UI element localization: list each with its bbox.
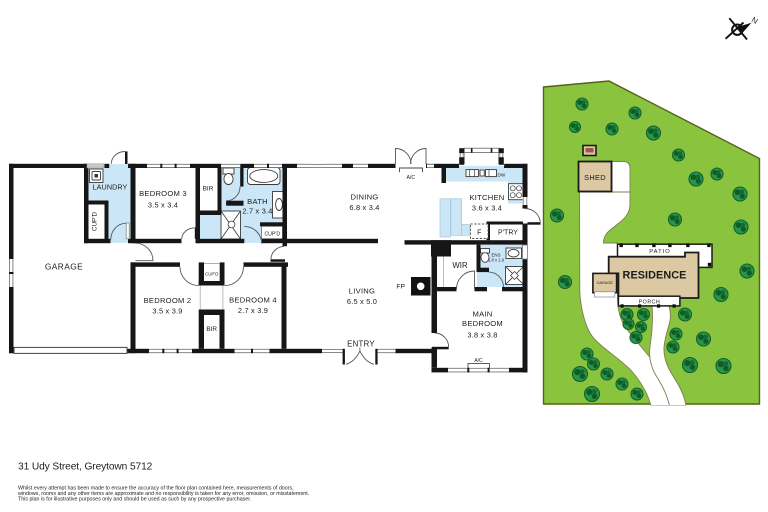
svg-text:31 Udy Street, Greytown 5712: 31 Udy Street, Greytown 5712 xyxy=(18,462,153,473)
svg-text:6.5 x 5.0: 6.5 x 5.0 xyxy=(347,297,377,306)
svg-text:GARAGE: GARAGE xyxy=(596,280,613,285)
svg-text:WIR: WIR xyxy=(452,261,468,270)
svg-text:3.6 x 3.4: 3.6 x 3.4 xyxy=(472,204,502,213)
svg-text:2.7 x 3.9: 2.7 x 3.9 xyxy=(238,306,268,315)
svg-text:CUP'D: CUP'D xyxy=(264,231,280,237)
svg-text:6.8 x 3.4: 6.8 x 3.4 xyxy=(349,203,379,212)
svg-text:SHED: SHED xyxy=(584,173,606,182)
svg-text:F: F xyxy=(477,230,481,237)
svg-text:BEDROOM 4: BEDROOM 4 xyxy=(229,296,277,305)
svg-text:ENTRY: ENTRY xyxy=(347,340,375,349)
svg-text:PATIO: PATIO xyxy=(649,249,671,255)
svg-text:DINING: DINING xyxy=(350,193,378,202)
svg-text:This plan is for illustrative: This plan is for illustrative purposes o… xyxy=(18,497,251,503)
svg-text:LIVING: LIVING xyxy=(349,287,375,296)
svg-text:P'TRY: P'TRY xyxy=(498,230,518,237)
svg-text:3.5 x 3.9: 3.5 x 3.9 xyxy=(152,307,182,316)
svg-text:RESIDENCE: RESIDENCE xyxy=(623,270,687,282)
svg-text:BATH: BATH xyxy=(247,197,268,206)
svg-text:BEDROOM 2: BEDROOM 2 xyxy=(144,296,192,305)
svg-text:BEDROOM 3: BEDROOM 3 xyxy=(139,189,187,198)
svg-text:LAUNDRY: LAUNDRY xyxy=(93,183,128,192)
svg-text:MAIN: MAIN xyxy=(473,310,493,319)
svg-text:BEDROOM: BEDROOM xyxy=(462,319,503,328)
svg-text:BIR: BIR xyxy=(206,326,217,333)
svg-text:2.7 x 3.4: 2.7 x 3.4 xyxy=(242,207,272,216)
svg-text:DW: DW xyxy=(498,173,506,178)
svg-text:KITCHEN: KITCHEN xyxy=(469,193,504,202)
svg-text:GARAGE: GARAGE xyxy=(45,261,83,271)
svg-text:A/C: A/C xyxy=(406,175,415,181)
svg-text:PORCH: PORCH xyxy=(639,300,661,306)
svg-text:3.8 x 3.8: 3.8 x 3.8 xyxy=(467,331,497,340)
svg-text:FP: FP xyxy=(396,284,405,291)
svg-text:A/C: A/C xyxy=(474,358,483,364)
svg-text:1.8 x 1.9: 1.8 x 1.9 xyxy=(488,258,505,263)
svg-text:BIR: BIR xyxy=(203,186,214,193)
svg-text:CUP'D: CUP'D xyxy=(205,272,218,277)
svg-text:CUP'D: CUP'D xyxy=(92,211,99,231)
svg-text:3.5 x 3.4: 3.5 x 3.4 xyxy=(148,201,178,210)
